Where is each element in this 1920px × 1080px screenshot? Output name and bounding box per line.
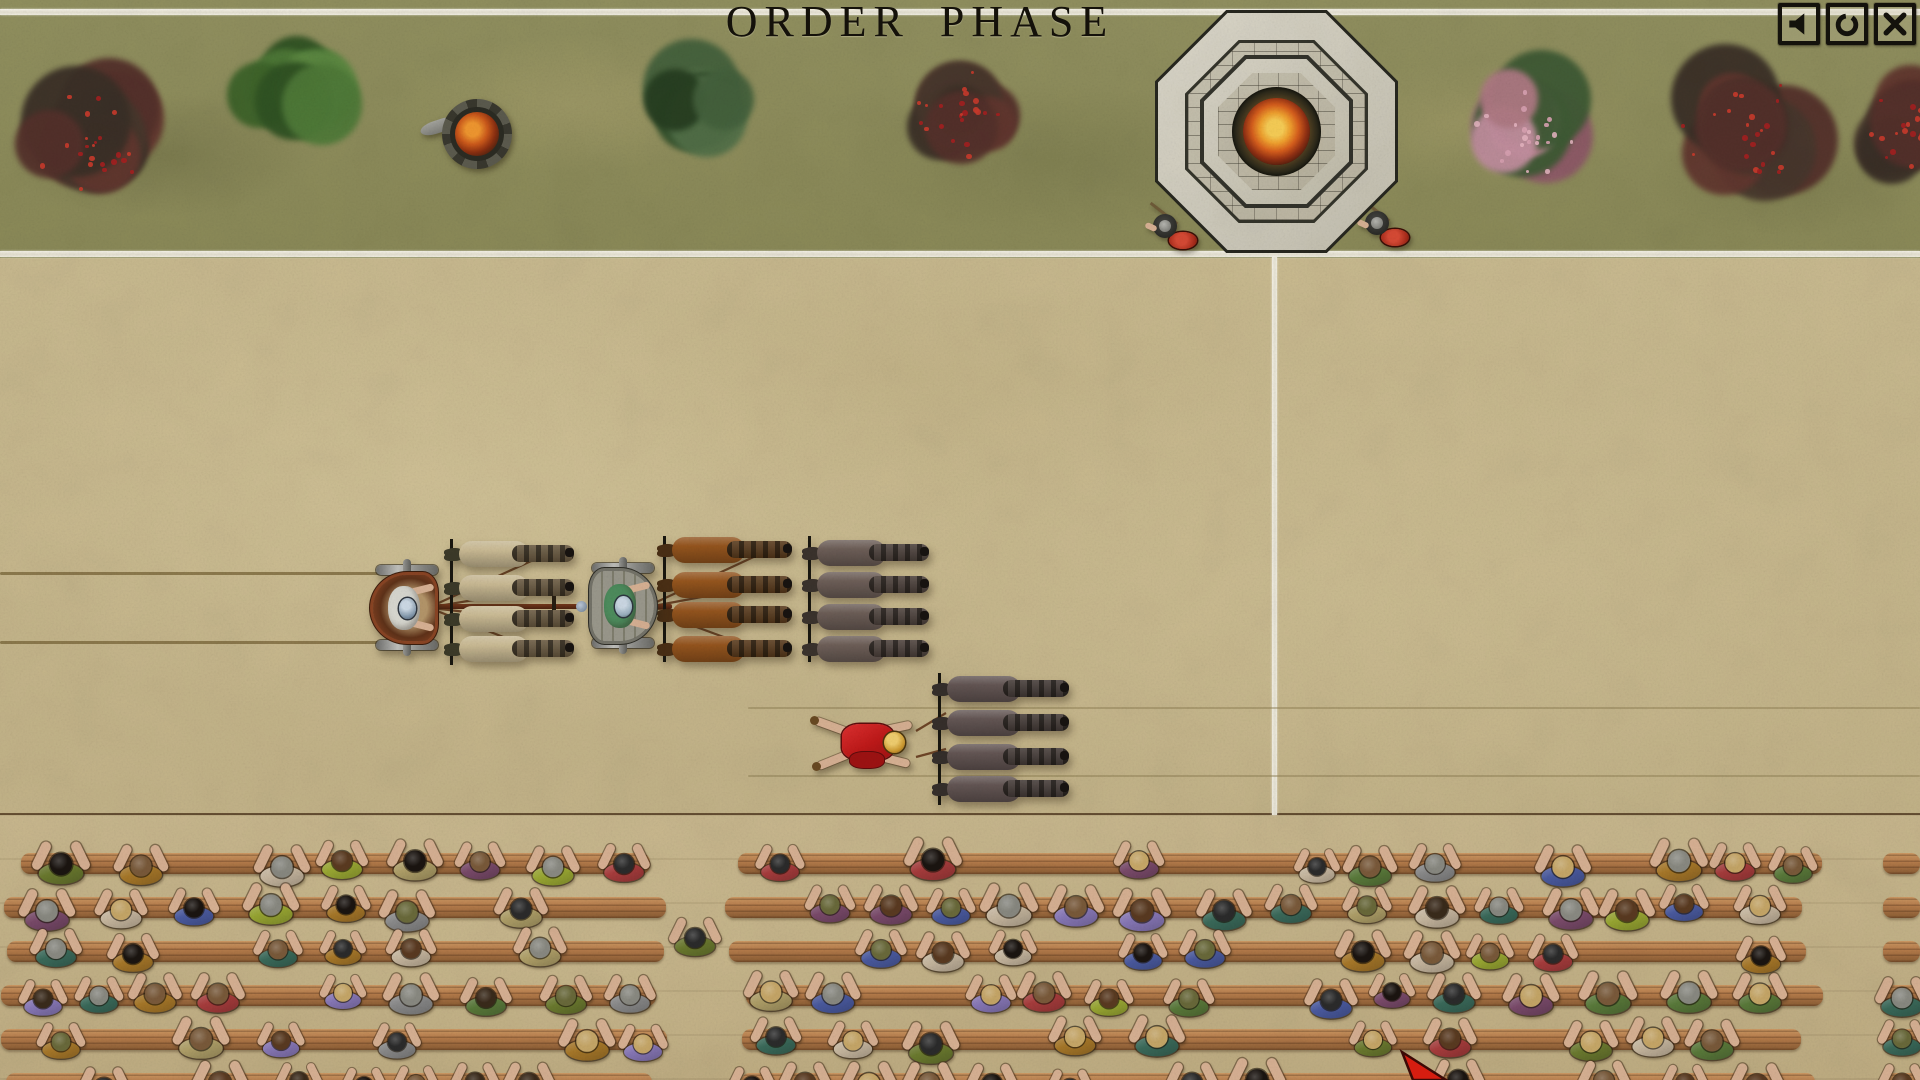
horse-muzzle xyxy=(920,611,929,620)
horse xyxy=(663,571,803,599)
horse xyxy=(808,571,940,599)
horse-muzzle xyxy=(1060,783,1069,792)
horse-muzzle xyxy=(1060,751,1069,760)
horse xyxy=(938,743,1080,771)
horse-team-white-team[interactable] xyxy=(450,541,585,665)
horse-muzzle xyxy=(920,643,929,652)
horse-neck-head xyxy=(1003,780,1068,797)
horse xyxy=(808,603,940,631)
charioteer-skirt xyxy=(850,752,884,768)
horse-muzzle xyxy=(783,544,792,553)
horse-neck-head xyxy=(1003,680,1068,697)
horse-team-loose-team-upper[interactable] xyxy=(808,538,940,662)
limb-tip xyxy=(810,716,819,725)
horse-muzzle xyxy=(1060,717,1069,726)
horse xyxy=(450,635,585,663)
limb-tip xyxy=(812,762,821,771)
options-button[interactable] xyxy=(1826,3,1868,45)
horse xyxy=(663,536,803,564)
horse-muzzle xyxy=(783,609,792,618)
circle-icon xyxy=(1832,9,1862,39)
entities-layer xyxy=(0,0,1920,1080)
horse xyxy=(938,775,1080,803)
horse xyxy=(663,601,803,629)
horse xyxy=(938,709,1080,737)
phase-title: ORDER PHASE xyxy=(420,0,1420,47)
horse-team-loose-team-lower[interactable] xyxy=(938,675,1080,805)
fallen-charioteer[interactable] xyxy=(812,712,924,778)
horse xyxy=(938,675,1080,703)
charioteer-helmet xyxy=(615,596,632,617)
close-icon xyxy=(1880,9,1910,39)
speaker-icon xyxy=(1784,9,1814,39)
mute-button[interactable] xyxy=(1778,3,1820,45)
horse xyxy=(808,539,940,567)
horse-muzzle xyxy=(565,548,574,557)
horse-neck-head xyxy=(1003,714,1068,731)
horse xyxy=(808,635,940,663)
white-chariot[interactable] xyxy=(372,562,442,654)
game-scene: ORDER PHASE xyxy=(0,0,1920,1080)
reins-lines xyxy=(0,0,1920,1080)
horse-muzzle xyxy=(565,582,574,591)
horse-muzzle xyxy=(1060,683,1069,692)
gold-helmet xyxy=(884,732,905,753)
charioteer-helmet xyxy=(399,598,416,619)
green-chariot[interactable] xyxy=(588,560,658,652)
horse-muzzle xyxy=(783,579,792,588)
horse xyxy=(450,574,585,602)
horse-team-green-team[interactable] xyxy=(663,538,803,662)
horse-muzzle xyxy=(920,579,929,588)
horse-neck-head xyxy=(1003,748,1068,765)
horse xyxy=(450,605,585,633)
horse-muzzle xyxy=(565,613,574,622)
horse xyxy=(450,540,585,568)
horse xyxy=(663,635,803,663)
close-button[interactable] xyxy=(1874,3,1916,45)
horse-muzzle xyxy=(783,643,792,652)
